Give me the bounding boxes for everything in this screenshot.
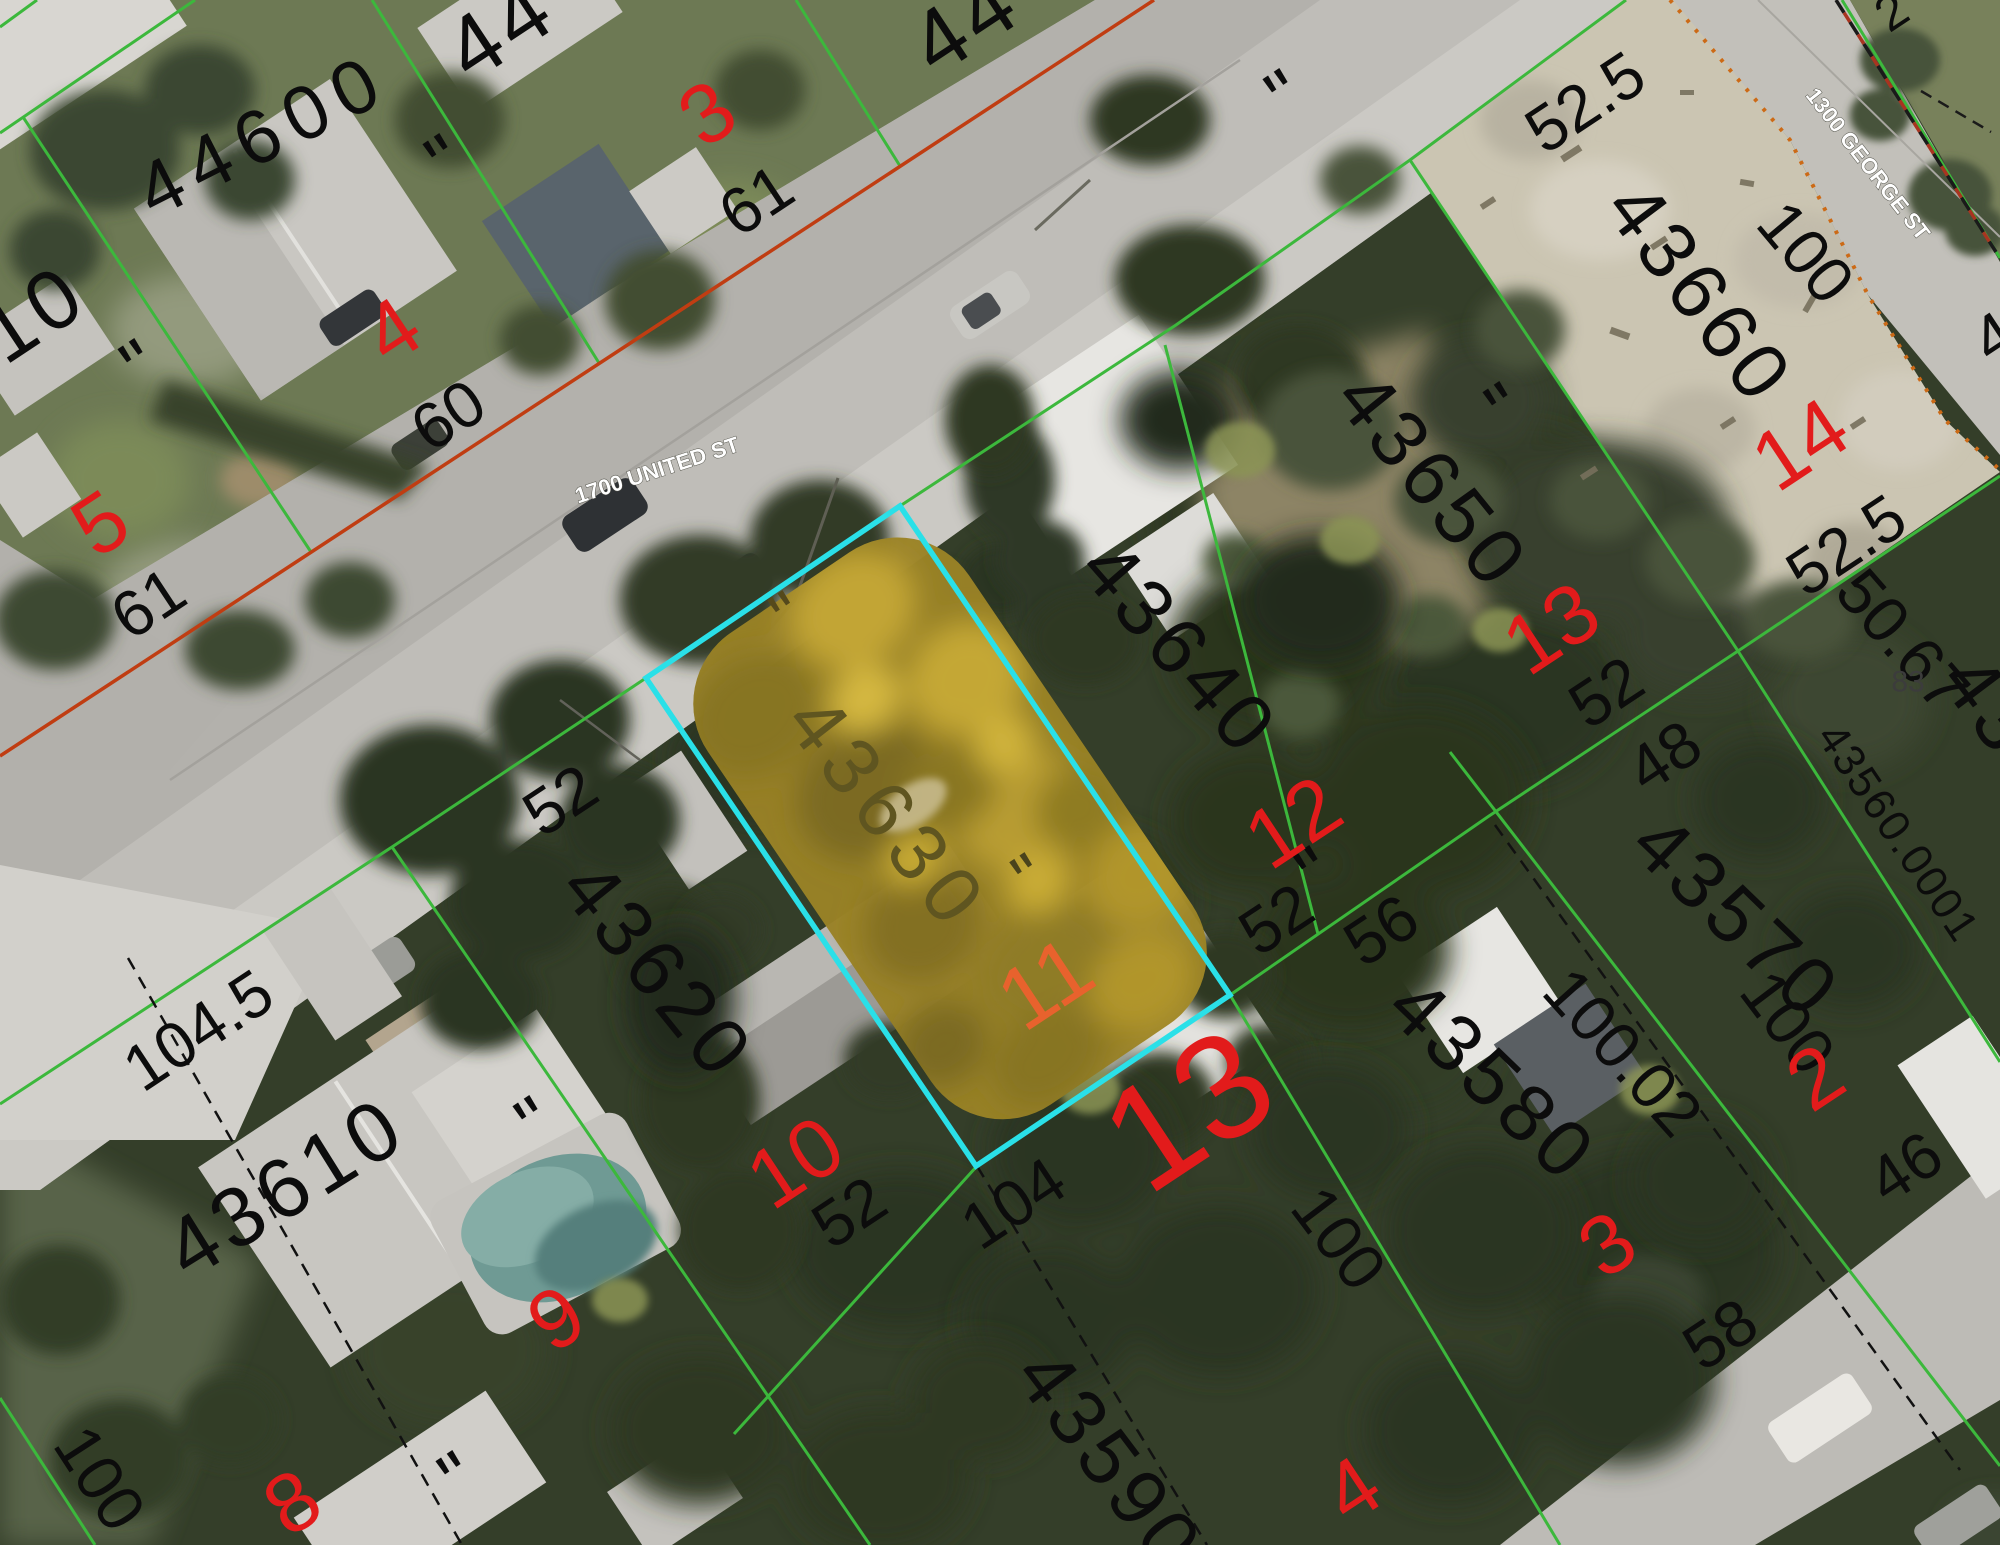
svg-text:83: 83 <box>1891 666 1924 699</box>
